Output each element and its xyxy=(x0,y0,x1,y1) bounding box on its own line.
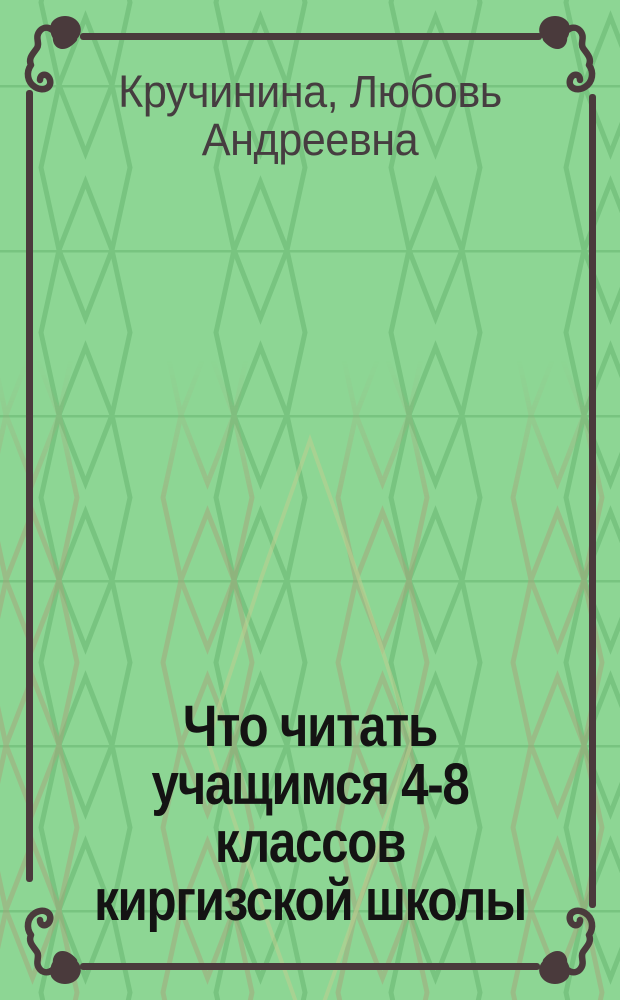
author-name: Кручинина, Любовь Андреевна xyxy=(12,68,607,163)
book-cover: Кручинина, Любовь Андреевна Что читать у… xyxy=(0,0,620,1000)
book-title: Что читать учащимся 4-8 классов киргизск… xyxy=(47,698,574,930)
